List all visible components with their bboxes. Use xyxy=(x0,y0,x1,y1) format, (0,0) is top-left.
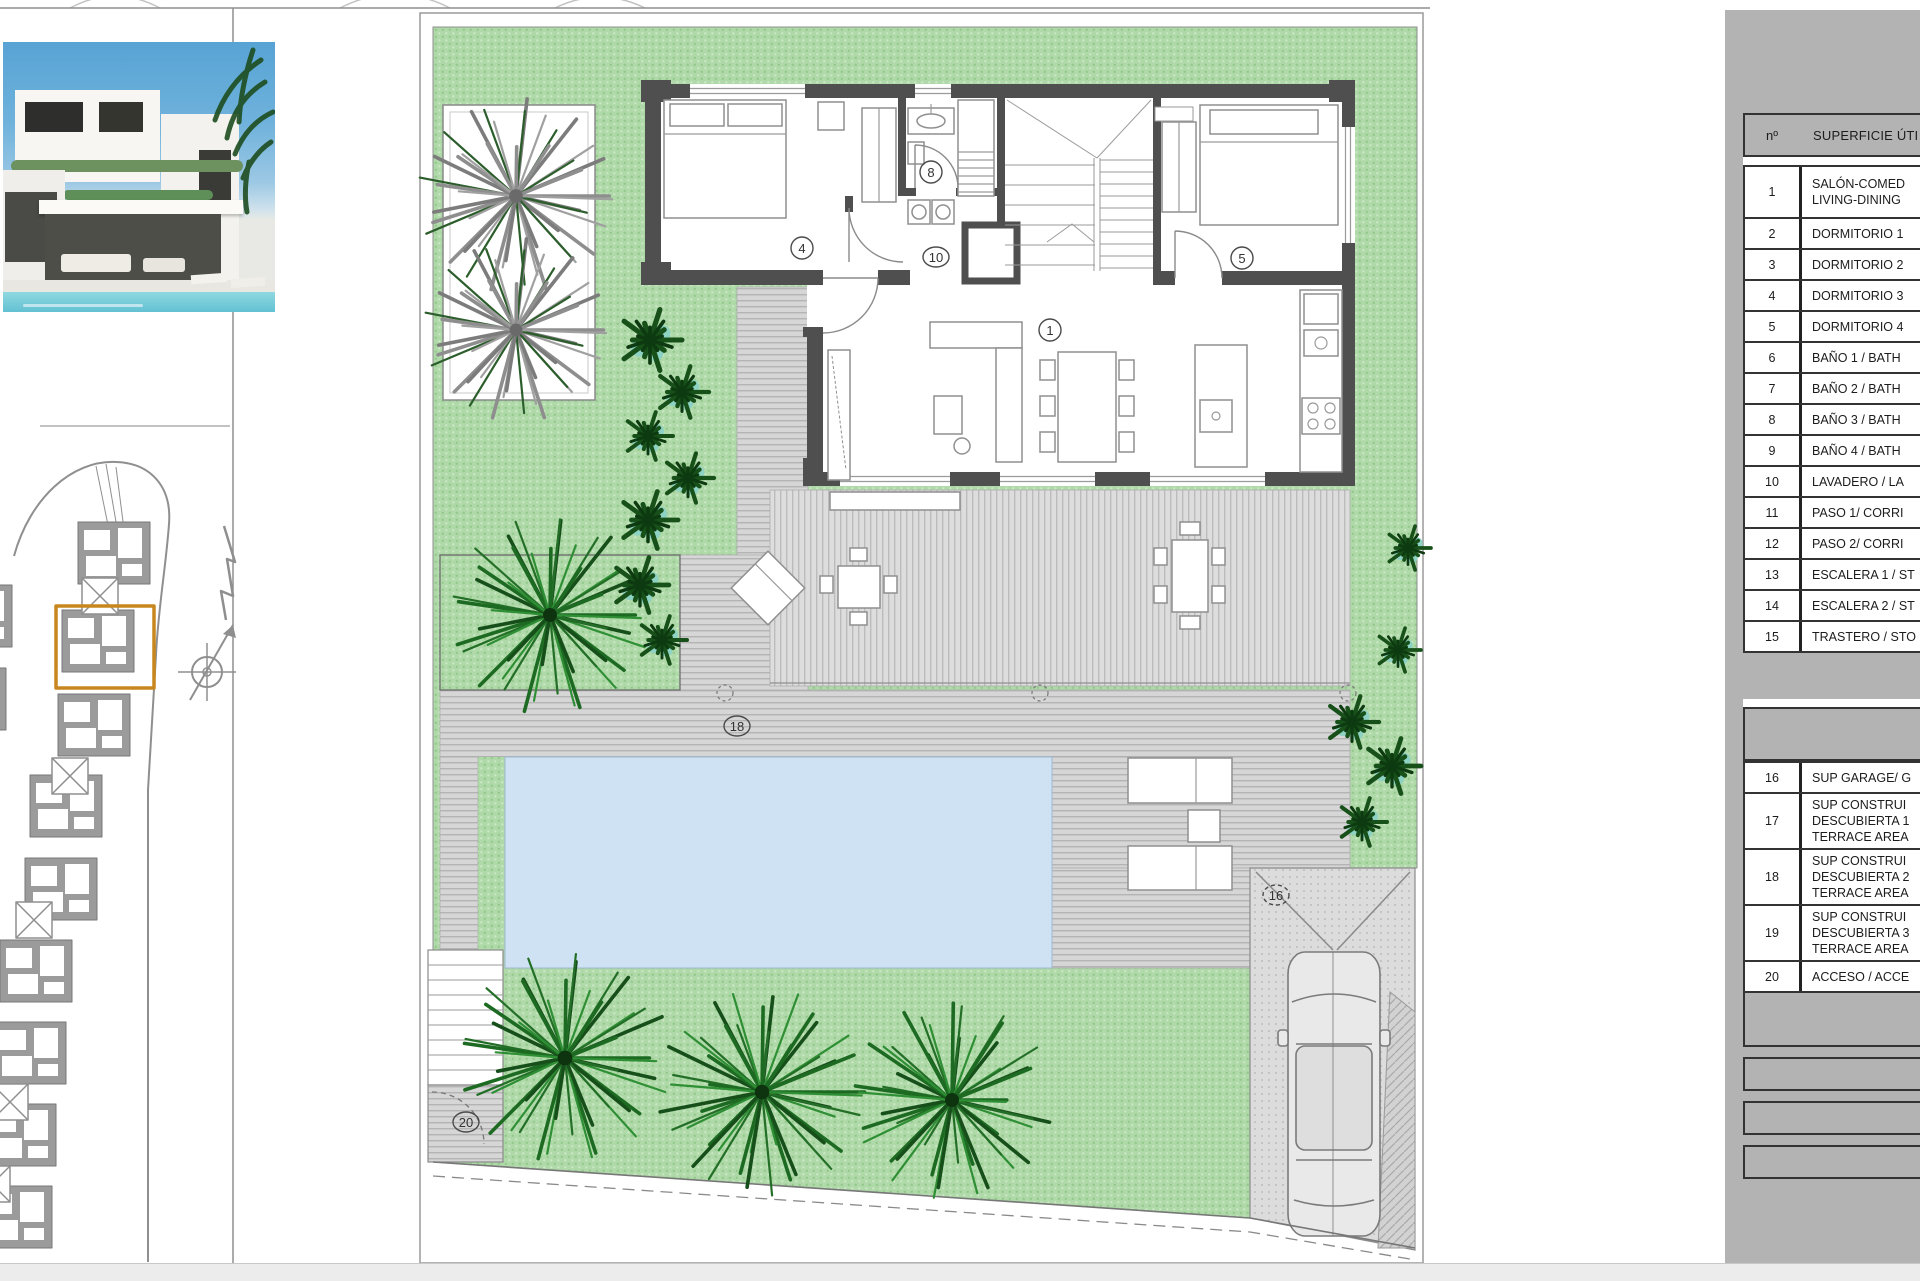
row-number: 18 xyxy=(1745,850,1802,904)
pool-green-edge xyxy=(478,757,505,968)
row-line: SUP CONSTRUI xyxy=(1812,797,1920,813)
row-description: LAVADERO / LA xyxy=(1802,467,1920,496)
row-line: BAÑO 1 / BATH xyxy=(1812,350,1920,366)
row-line: DESCUBIERTA 3 xyxy=(1812,925,1920,941)
row-description: SUP CONSTRUI DESCUBIERTA 3 TERRACE AREA xyxy=(1802,906,1920,960)
table-row: 12 PASO 2/ CORRI xyxy=(1745,527,1920,558)
table-row: 3 DORMITORIO 2 xyxy=(1745,248,1920,279)
row-number: 10 xyxy=(1745,467,1802,496)
row-description: BAÑO 1 / BATH xyxy=(1802,343,1920,372)
row-line: SUP CONSTRUI xyxy=(1812,853,1920,869)
row-number: 17 xyxy=(1745,794,1802,848)
table-row: 2 DORMITORIO 1 xyxy=(1745,217,1920,248)
outdoor-sofa xyxy=(143,258,185,272)
table-row: 19 SUP CONSTRUI DESCUBIERTA 3 TERRACE AR… xyxy=(1745,904,1920,960)
outdoor-sofa xyxy=(61,254,131,272)
built-areas-section-header: SUP CONSTRUIDA IN INTERIOR A xyxy=(1743,707,1920,761)
window-bottom-strip xyxy=(0,1263,1920,1281)
row-description: ACCESO / ACCE xyxy=(1802,962,1920,991)
architectural-drawing: 1 4 5 8 10 16 18 20 xyxy=(0,0,1920,1280)
row-line: DESCUBIERTA 1 xyxy=(1812,813,1920,829)
site-key-plan xyxy=(0,462,236,1262)
gap xyxy=(1743,157,1920,165)
garage-driveway xyxy=(1250,868,1415,1250)
svg-text:10: 10 xyxy=(929,250,943,265)
row-number: 2 xyxy=(1745,219,1802,248)
svg-text:4: 4 xyxy=(798,241,805,256)
usable-areas-table: 1 SALÓN-COMED LIVING-DINING 2 DORMITORIO… xyxy=(1743,165,1920,653)
row-description: PASO 1/ CORRI xyxy=(1802,498,1920,527)
row-number: 11 xyxy=(1745,498,1802,527)
row-description: TRASTERO / STO xyxy=(1802,622,1920,651)
floor-plan-sheet-page: { "plan": { "labels": [ {"n": "1"}, {"n"… xyxy=(0,0,1920,1280)
row-number: 20 xyxy=(1745,962,1802,991)
row-number: 6 xyxy=(1745,343,1802,372)
row-description: PASO 2/ CORRI xyxy=(1802,529,1920,558)
gap xyxy=(1743,699,1920,707)
swimming-pool xyxy=(505,757,1052,968)
svg-text:20: 20 xyxy=(459,1115,473,1130)
row-number: 8 xyxy=(1745,405,1802,434)
car-icon xyxy=(1278,952,1390,1236)
row-description: DORMITORIO 2 xyxy=(1802,250,1920,279)
row-description: SUP CONSTRUI DESCUBIERTA 1 TERRACE AREA xyxy=(1802,794,1920,848)
areas-table-header: nº SUPERFICIE ÚTI xyxy=(1743,113,1920,157)
row-description: SALÓN-COMED LIVING-DINING xyxy=(1802,167,1920,217)
row-number: 13 xyxy=(1745,560,1802,589)
table-row: 7 BAÑO 2 / BATH xyxy=(1745,372,1920,403)
row-line: ACCESO / ACCE xyxy=(1812,969,1920,985)
row-number: 19 xyxy=(1745,906,1802,960)
storage-box xyxy=(965,225,1017,281)
table-row: 9 BAÑO 4 / BATH xyxy=(1745,434,1920,465)
row-number: 5 xyxy=(1745,312,1802,341)
row-description: BAÑO 2 / BATH xyxy=(1802,374,1920,403)
table-row: 17 SUP CONSTRUI DESCUBIERTA 1 TERRACE AR… xyxy=(1745,792,1920,848)
table-row: 4 DORMITORIO 3 xyxy=(1745,279,1920,310)
row-line: DORMITORIO 1 xyxy=(1812,226,1920,242)
bedroom5-furniture xyxy=(1155,105,1338,225)
row-line: TERRACE AREA xyxy=(1812,885,1920,901)
table-row: 20 ACCESO / ACCE xyxy=(1745,960,1920,991)
row-number: 14 xyxy=(1745,591,1802,620)
summary-garden: SUP. JARDÍN / GAR xyxy=(1743,1101,1920,1135)
summary-plot: SUPERFICE PARCELA xyxy=(1743,1145,1920,1179)
row-line: PASO 1/ CORRI xyxy=(1812,505,1920,521)
row-line: LIVING-DINING xyxy=(1812,192,1920,208)
row-description: DORMITORIO 3 xyxy=(1802,281,1920,310)
pool-water xyxy=(3,292,275,312)
villa-photo xyxy=(3,42,275,312)
svg-text:8: 8 xyxy=(927,165,934,180)
svg-text:18: 18 xyxy=(730,719,744,734)
table-row: 16 SUP GARAGE/ G xyxy=(1745,763,1920,792)
row-description: DORMITORIO 1 xyxy=(1802,219,1920,248)
areas-table: nº SUPERFICIE ÚTI 1 SALÓN-COMED LIVING-D… xyxy=(1743,113,1920,1179)
table-row: 1 SALÓN-COMED LIVING-DINING xyxy=(1745,167,1920,217)
table-row: 13 ESCALERA 1 / ST xyxy=(1745,558,1920,589)
row-line: ESCALERA 1 / ST xyxy=(1812,567,1920,583)
table-row: 11 PASO 1/ CORRI xyxy=(1745,496,1920,527)
built-areas-table: 16 SUP GARAGE/ G 17 SUP CONSTRUI DESCUBI… xyxy=(1743,761,1920,993)
row-line: TRASTERO / STO xyxy=(1812,629,1920,645)
row-number: 1 xyxy=(1745,167,1802,217)
row-number: 9 xyxy=(1745,436,1802,465)
row-number: 16 xyxy=(1745,763,1802,792)
table-row: 14 ESCALERA 2 / ST xyxy=(1745,589,1920,620)
row-number: 4 xyxy=(1745,281,1802,310)
row-number: 12 xyxy=(1745,529,1802,558)
row-number: 3 xyxy=(1745,250,1802,279)
table-row: 8 BAÑO 3 / BATH xyxy=(1745,403,1920,434)
row-line: ESCALERA 2 / ST xyxy=(1812,598,1920,614)
summary-pool: PISCINA / SWIMM xyxy=(1743,1057,1920,1091)
row-description: BAÑO 3 / BATH xyxy=(1802,405,1920,434)
row-line: DORMITORIO 2 xyxy=(1812,257,1920,273)
row-description: DORMITORIO 4 xyxy=(1802,312,1920,341)
row-line: SALÓN-COMED xyxy=(1812,176,1920,192)
row-line: DORMITORIO 3 xyxy=(1812,288,1920,304)
table-row: 6 BAÑO 1 / BATH xyxy=(1745,341,1920,372)
row-line: TERRACE AREA xyxy=(1812,941,1920,957)
row-number: 7 xyxy=(1745,374,1802,403)
row-line: SUP GARAGE/ G xyxy=(1812,770,1920,786)
table-row: 18 SUP CONSTRUI DESCUBIERTA 2 TERRACE AR… xyxy=(1745,848,1920,904)
table-row: 5 DORMITORIO 4 xyxy=(1745,310,1920,341)
row-line: BAÑO 4 / BATH xyxy=(1812,443,1920,459)
row-description: ESCALERA 1 / ST xyxy=(1802,560,1920,589)
north-compass-icon xyxy=(178,526,236,701)
total-row: TOTAL SUP CONSTRUIDA BUILT PRIVATE xyxy=(1743,993,1920,1047)
svg-text:5: 5 xyxy=(1238,251,1245,266)
row-line: DORMITORIO 4 xyxy=(1812,319,1920,335)
table-row: 15 TRASTERO / STO xyxy=(1745,620,1920,651)
row-line: BAÑO 3 / BATH xyxy=(1812,412,1920,428)
row-line: DESCUBIERTA 2 xyxy=(1812,869,1920,885)
areas-panel: nº SUPERFICIE ÚTI 1 SALÓN-COMED LIVING-D… xyxy=(1725,10,1920,1263)
svg-text:1: 1 xyxy=(1046,323,1053,338)
row-description: ESCALERA 2 / ST xyxy=(1802,591,1920,620)
row-line: PASO 2/ CORRI xyxy=(1812,536,1920,552)
header-number-column: nº xyxy=(1745,128,1799,143)
row-description: BAÑO 4 / BATH xyxy=(1802,436,1920,465)
svg-text:16: 16 xyxy=(1269,888,1283,903)
row-line: SUP CONSTRUI xyxy=(1812,909,1920,925)
header-description-column: SUPERFICIE ÚTI xyxy=(1799,128,1920,143)
row-number: 15 xyxy=(1745,622,1802,651)
row-line: BAÑO 2 / BATH xyxy=(1812,381,1920,397)
palm-fronds-icon xyxy=(3,42,275,242)
row-description: SUP GARAGE/ G xyxy=(1802,763,1920,792)
spacer xyxy=(1743,653,1920,699)
pool-ripple xyxy=(23,304,143,307)
table-row: 10 LAVADERO / LA xyxy=(1745,465,1920,496)
row-description: SUP CONSTRUI DESCUBIERTA 2 TERRACE AREA xyxy=(1802,850,1920,904)
row-line: LAVADERO / LA xyxy=(1812,474,1920,490)
dining-set xyxy=(1040,352,1134,462)
row-line: TERRACE AREA xyxy=(1812,829,1920,845)
